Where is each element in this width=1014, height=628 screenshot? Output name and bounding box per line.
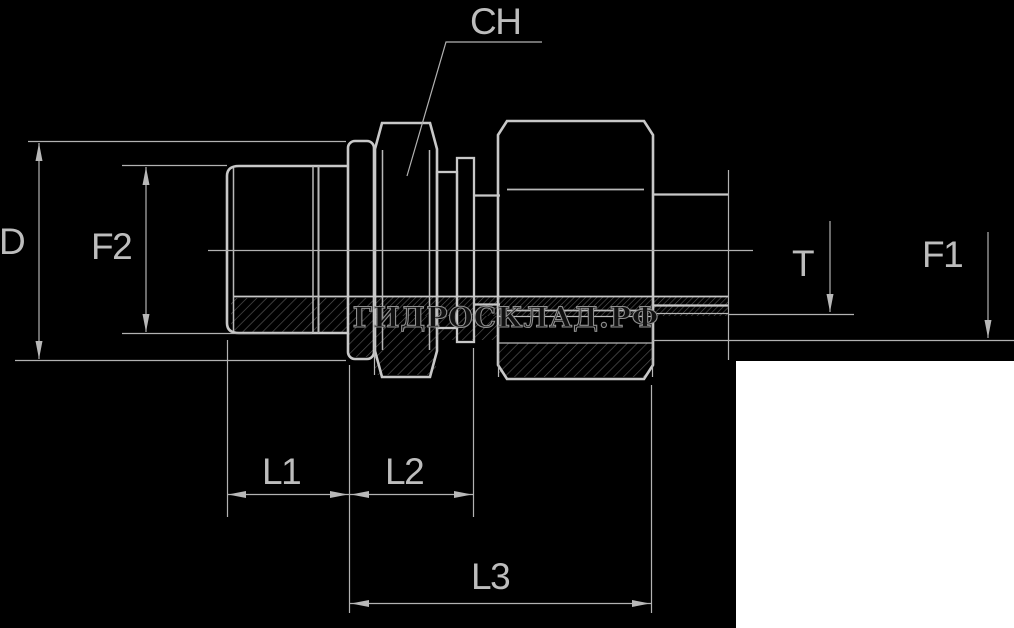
l2-arrow-right: [454, 491, 472, 498]
label-l2: L2: [385, 451, 423, 492]
d-arrow-down: [36, 341, 43, 359]
label-f1: F1: [922, 234, 962, 275]
f1-arrow-down: [985, 320, 992, 338]
label-t: T: [792, 243, 814, 284]
white-corner-panel: [736, 361, 1014, 628]
watermark-text: ГИДРОСКЛАД.РФ: [353, 301, 660, 334]
l2-arrow-left: [351, 491, 369, 498]
l3-arrow-left: [351, 600, 369, 607]
ch-leader-line: [407, 42, 542, 176]
hatch-neck: [319, 298, 348, 332]
label-f2: F2: [91, 226, 131, 267]
f2-arrow-up: [143, 167, 150, 185]
hatch-nut-body: [499, 343, 653, 377]
l1-arrow-left: [228, 491, 246, 498]
l1-arrow-right: [330, 491, 348, 498]
fitting-drawing: CH D F2 T F1 L1 L2 L3 ГИДРОСКЛАД.РФ: [0, 0, 1014, 628]
label-d: D: [0, 221, 24, 262]
l3-arrow-right: [632, 600, 650, 607]
label-ch: CH: [470, 1, 520, 42]
t-arrow-down: [827, 294, 834, 312]
d-arrow-up: [36, 143, 43, 161]
label-l3: L3: [471, 556, 509, 597]
hatch-stud-wall: [231, 298, 317, 332]
technical-drawing-canvas: CH D F2 T F1 L1 L2 L3 ГИДРОСКЛАД.РФ: [0, 0, 1014, 628]
f2-arrow-down: [143, 314, 150, 332]
label-l1: L1: [262, 451, 300, 492]
